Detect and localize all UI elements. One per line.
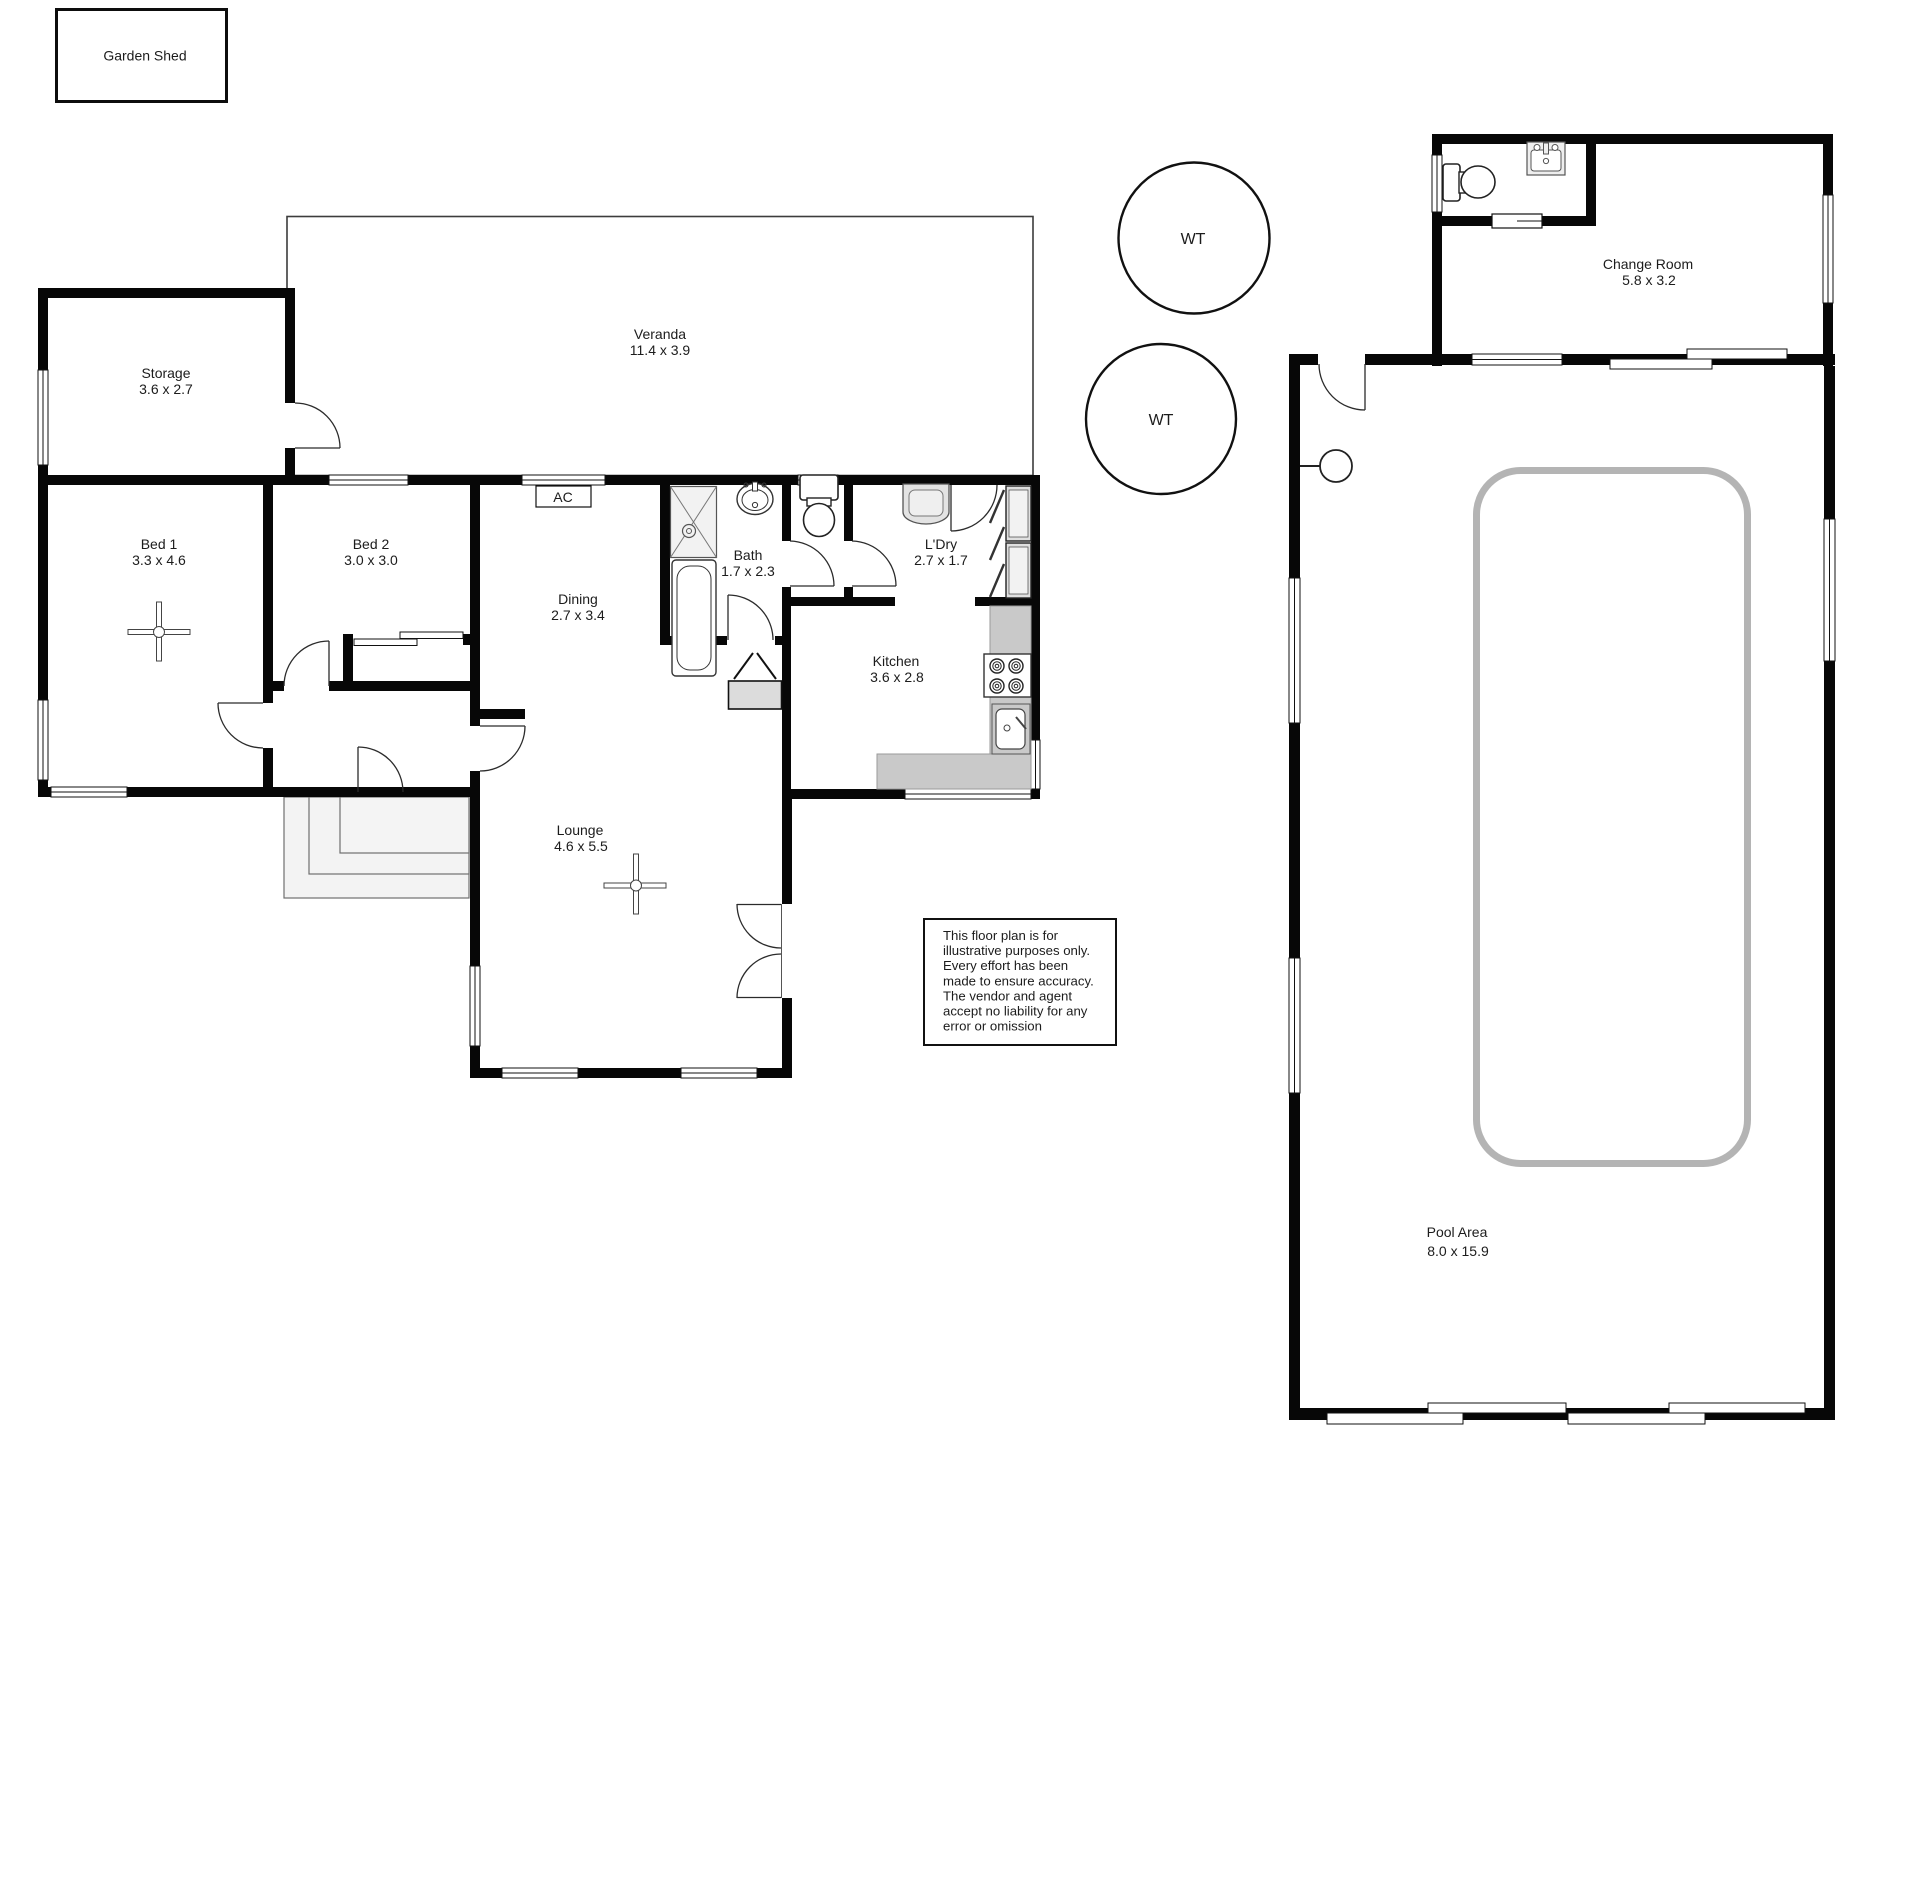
svg-text:illustrative purposes only.: illustrative purposes only. [943, 943, 1090, 958]
svg-text:1.7 x 2.3: 1.7 x 2.3 [721, 563, 775, 579]
svg-text:3.6 x 2.8: 3.6 x 2.8 [870, 669, 924, 685]
svg-text:Change Room: Change Room [1603, 256, 1693, 272]
svg-text:Dining: Dining [558, 591, 598, 607]
svg-text:4.6 x 5.5: 4.6 x 5.5 [554, 838, 608, 854]
svg-text:The vendor and agent: The vendor and agent [943, 988, 1072, 1003]
svg-text:3.6 x 2.7: 3.6 x 2.7 [139, 381, 193, 397]
svg-text:Pool Area: Pool Area [1427, 1224, 1488, 1240]
svg-text:Bath: Bath [734, 547, 763, 563]
svg-text:WT: WT [1149, 412, 1174, 429]
svg-text:made to ensure accuracy.: made to ensure accuracy. [943, 973, 1094, 988]
svg-text:11.4 x 3.9: 11.4 x 3.9 [630, 342, 691, 358]
svg-text:2.7 x 1.7: 2.7 x 1.7 [914, 552, 968, 568]
svg-text:Bed 2: Bed 2 [353, 536, 390, 552]
svg-text:Veranda: Veranda [634, 326, 686, 342]
svg-text:Kitchen: Kitchen [873, 653, 920, 669]
svg-text:L'Dry: L'Dry [925, 536, 957, 552]
svg-text:3.0 x 3.0: 3.0 x 3.0 [344, 552, 398, 568]
svg-text:AC: AC [553, 489, 572, 505]
svg-text:Lounge: Lounge [557, 822, 604, 838]
svg-text:3.3 x 4.6: 3.3 x 4.6 [132, 552, 186, 568]
svg-text:Every effort has been: Every effort has been [943, 958, 1068, 973]
svg-text:This floor plan is for: This floor plan is for [943, 928, 1059, 943]
svg-text:5.8 x 3.2: 5.8 x 3.2 [1622, 272, 1676, 288]
svg-text:Bed 1: Bed 1 [141, 536, 178, 552]
svg-text:Garden Shed: Garden Shed [103, 48, 186, 64]
svg-text:8.0 x 15.9: 8.0 x 15.9 [1427, 1243, 1489, 1259]
svg-text:WT: WT [1181, 231, 1206, 248]
svg-text:2.7 x 3.4: 2.7 x 3.4 [551, 607, 605, 623]
svg-text:accept no liability for any: accept no liability for any [943, 1004, 1088, 1019]
svg-text:Storage: Storage [141, 365, 190, 381]
svg-text:error or omission: error or omission [943, 1019, 1042, 1034]
